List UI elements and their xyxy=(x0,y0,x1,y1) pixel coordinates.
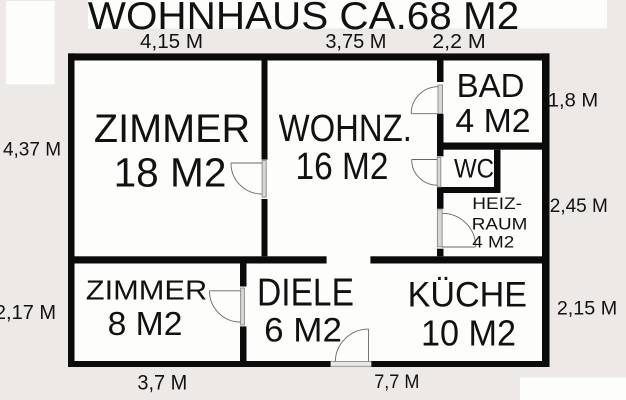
svg-text:2,2 M: 2,2 M xyxy=(432,31,486,53)
svg-text:18 M2: 18 M2 xyxy=(114,150,227,196)
svg-text:6 M2: 6 M2 xyxy=(264,312,342,349)
svg-text:HEIZ-: HEIZ- xyxy=(472,194,522,213)
svg-text:16 M2: 16 M2 xyxy=(296,145,389,187)
svg-text:4,37 M: 4,37 M xyxy=(3,140,61,161)
svg-text:ZIMMER: ZIMMER xyxy=(94,107,250,151)
svg-text:RAUM: RAUM xyxy=(472,214,528,233)
svg-text:2,45 M: 2,45 M xyxy=(550,196,608,217)
svg-text:BAD: BAD xyxy=(457,67,525,104)
svg-text:4 M2: 4 M2 xyxy=(472,233,514,252)
svg-text:10 M2: 10 M2 xyxy=(421,314,516,354)
svg-text:KÜCHE: KÜCHE xyxy=(408,276,527,314)
svg-text:1,8 M: 1,8 M xyxy=(548,90,598,111)
svg-text:3,75 M: 3,75 M xyxy=(325,31,386,53)
svg-text:3,7 M: 3,7 M xyxy=(137,371,187,395)
svg-text:DIELE: DIELE xyxy=(257,270,354,314)
svg-text:WC: WC xyxy=(454,154,494,184)
svg-text:4 M2: 4 M2 xyxy=(455,104,530,141)
svg-text:2,15 M: 2,15 M xyxy=(557,298,617,320)
svg-text:2,17 M: 2,17 M xyxy=(0,302,56,324)
svg-text:WOHNZ.: WOHNZ. xyxy=(279,107,412,150)
svg-text:ZIMMER: ZIMMER xyxy=(86,276,207,306)
svg-text:7,7 M: 7,7 M xyxy=(374,371,419,393)
svg-text:4,15 M: 4,15 M xyxy=(140,31,203,53)
svg-text:8 M2: 8 M2 xyxy=(108,306,183,343)
